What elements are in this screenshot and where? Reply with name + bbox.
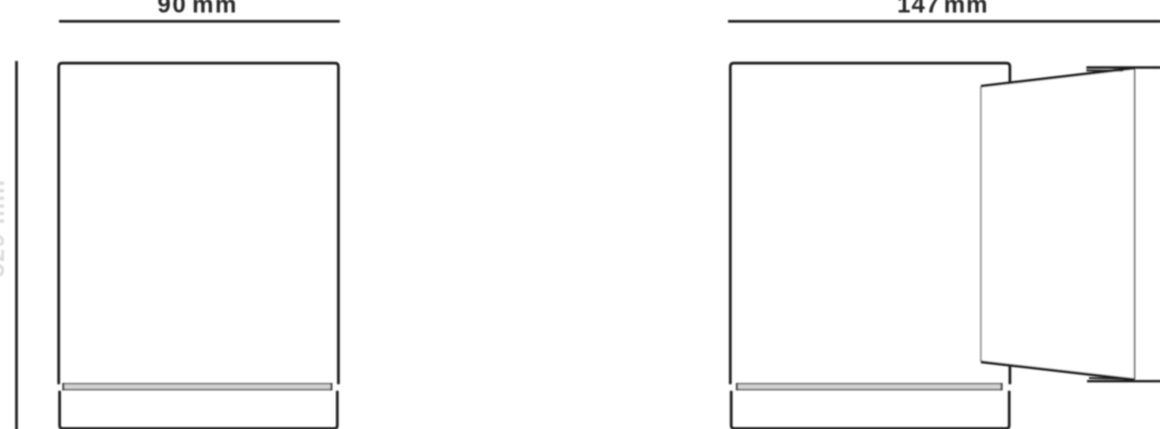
svg-text:90 mm: 90 mm bbox=[157, 0, 238, 19]
svg-text:329 mm: 329 mm bbox=[0, 179, 10, 277]
svg-text:147 mm: 147 mm bbox=[897, 0, 988, 19]
